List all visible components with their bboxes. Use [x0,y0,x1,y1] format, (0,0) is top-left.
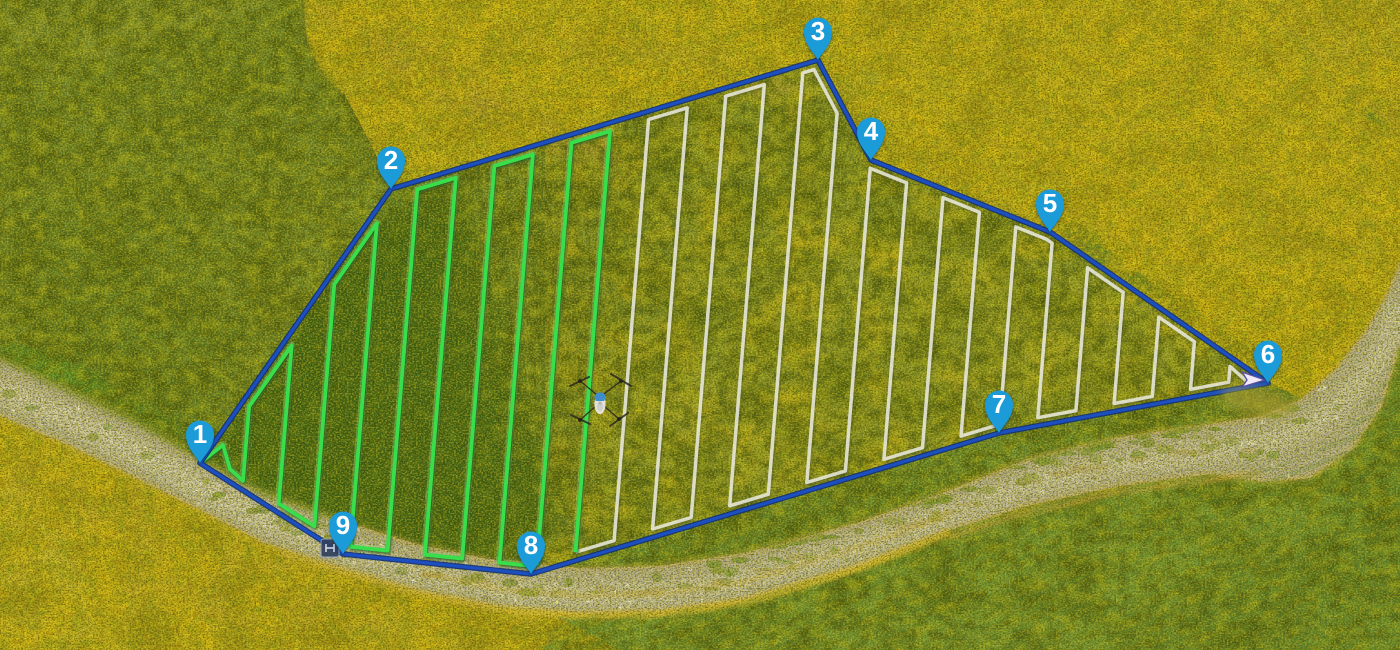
svg-text:1: 1 [193,419,207,449]
svg-text:2: 2 [384,145,398,175]
svg-text:9: 9 [336,510,350,540]
svg-text:6: 6 [1261,339,1275,369]
svg-text:4: 4 [864,116,879,146]
svg-text:3: 3 [811,16,825,46]
svg-text:5: 5 [1043,188,1057,218]
svg-text:7: 7 [992,389,1006,419]
svg-text:8: 8 [524,530,538,560]
